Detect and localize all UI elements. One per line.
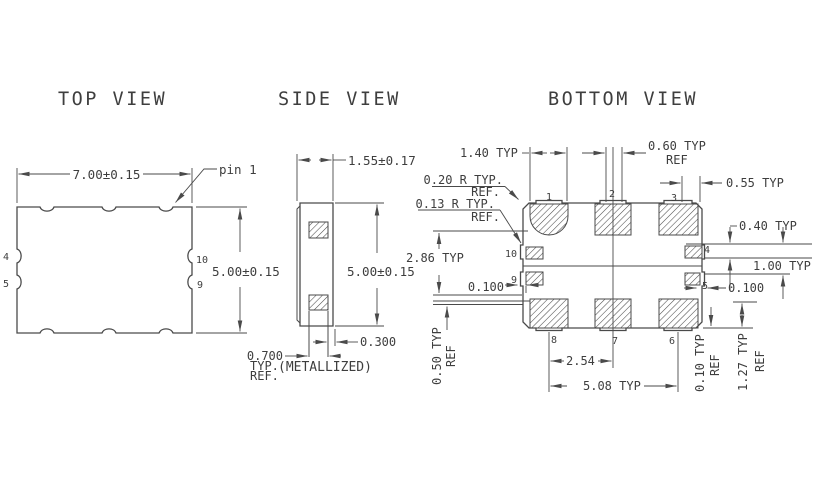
right-offset-2-ref: REF	[753, 350, 767, 372]
leader-line	[500, 210, 521, 243]
bottom-view-title: BOTTOM VIEW	[548, 89, 698, 110]
pad-8	[530, 299, 568, 328]
pad-width-dim: 1.40 TYP	[460, 146, 518, 160]
pin1-callout: pin 1	[219, 162, 257, 177]
corner-pad-dim: 0.55 TYP	[726, 176, 784, 190]
edge-gap-right-dim: 0.100	[728, 281, 764, 295]
bottom-pin-7: 7	[612, 336, 618, 347]
top-pin-10: 10	[196, 255, 208, 266]
bottom-pin-2: 2	[609, 189, 615, 200]
top-pin-9: 9	[197, 280, 203, 291]
right-offset-2-dim: 1.27 TYP	[736, 333, 750, 391]
pad-4	[685, 246, 702, 258]
side-pad-inset-dim: 0.300	[360, 335, 396, 349]
bottom-pin-5: 5	[702, 281, 708, 292]
pad-2	[595, 204, 631, 235]
notch-width-ref: REF	[666, 153, 688, 167]
bottom-pin-6: 6	[669, 336, 675, 347]
drawing-canvas: TOP VIEW 7.00±0.15 pin 1 5.00±0.15 4 5 1…	[0, 0, 817, 484]
side-view-title: SIDE VIEW	[278, 89, 401, 110]
radius-callout-2: 0.13 R TYP.	[416, 197, 495, 211]
top-view: TOP VIEW 7.00±0.15 pin 1 5.00±0.15 4 5 1…	[3, 89, 280, 333]
side-pad-lower	[309, 295, 328, 310]
pad-1	[530, 204, 568, 235]
bottom-pin-3: 3	[671, 193, 677, 204]
radius-callout-2-ref: REF.	[471, 210, 500, 224]
bottom-view: BOTTOM VIEW 1 2 3 4 5 6 7 8 9 10 1.40 TY…	[406, 89, 812, 393]
top-view-body-outline	[17, 207, 192, 333]
side-pad-upper	[309, 222, 328, 238]
rows-span-dim: 2.86 TYP	[406, 251, 464, 265]
leader-line	[505, 187, 519, 200]
top-height-dim: 5.00±0.15	[212, 264, 280, 279]
side-pad-height-dim: 0.40 TYP	[739, 219, 797, 233]
bottom-pin-9: 9	[511, 275, 517, 286]
bottom-pin-10: 10	[505, 249, 517, 260]
right-offset-1-dim: 0.10 TYP	[693, 334, 707, 392]
pad-9	[526, 272, 543, 285]
pad-3	[659, 204, 698, 235]
bottom-pin-1: 1	[546, 192, 552, 203]
pad-6	[659, 299, 698, 328]
side-pad-pitch-dim: 1.00 TYP	[753, 259, 811, 273]
metallized-note: (METALLIZED)	[278, 360, 372, 375]
pad-5	[685, 273, 700, 285]
edge-gap-left-dim: 0.100	[468, 280, 504, 294]
notch-width-dim: 0.60 TYP	[648, 139, 706, 153]
bottom-pin-4: 4	[704, 245, 710, 256]
package-drawing: TOP VIEW 7.00±0.15 pin 1 5.00±0.15 4 5 1…	[0, 0, 817, 484]
top-pin-5: 5	[3, 279, 9, 290]
bottom-pin-8: 8	[551, 335, 557, 346]
pad-pitch-dim: 2.54	[566, 354, 595, 368]
left-offset-dim: 0.50 TYP	[430, 327, 444, 385]
side-view: SIDE VIEW 1.55±0.17 5.00±0.15 0.300 0.70…	[247, 89, 416, 383]
left-offset-ref: REF	[444, 345, 458, 367]
pad-10	[526, 247, 543, 259]
side-thickness-dim: 1.55±0.17	[348, 153, 416, 168]
top-width-dim: 7.00±0.15	[73, 167, 141, 182]
top-pin-4: 4	[3, 252, 9, 263]
pads-span-dim: 5.08 TYP	[583, 379, 641, 393]
right-offset-1-ref: REF	[708, 354, 722, 376]
top-view-title: TOP VIEW	[58, 89, 167, 110]
pad-7	[595, 299, 631, 328]
side-pad-width-ref: REF.	[250, 369, 279, 383]
side-height-dim: 5.00±0.15	[347, 264, 415, 279]
